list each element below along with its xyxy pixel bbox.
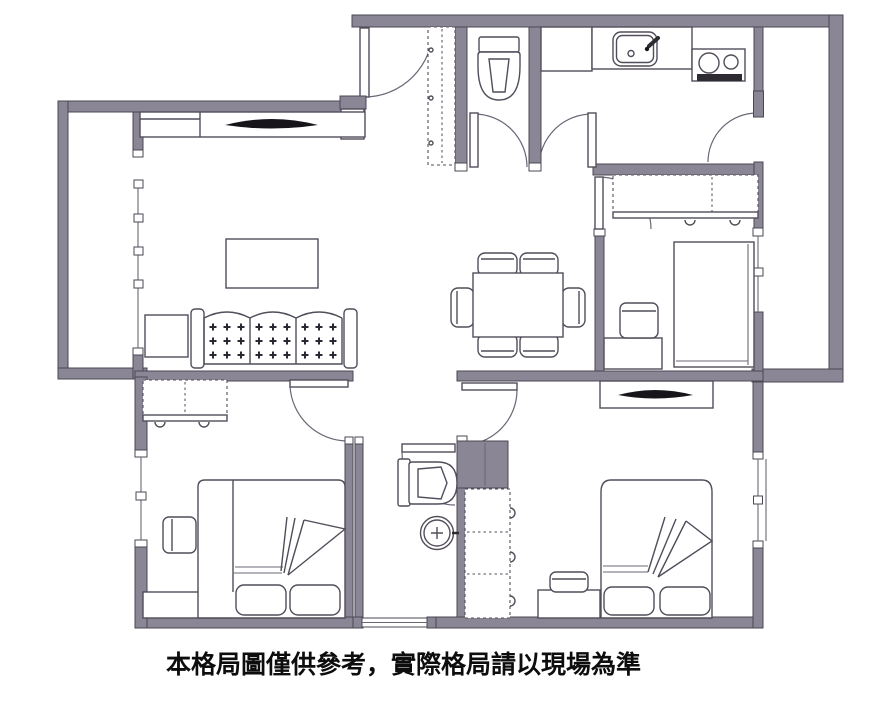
wall-living-top — [58, 101, 365, 112]
wall-bedroom-right-left — [595, 229, 604, 372]
coffee-table — [226, 239, 318, 288]
wall-toilet-left — [455, 27, 467, 170]
window-balcony-left — [134, 180, 143, 348]
toilet — [398, 459, 457, 506]
sofa-tufting-3 — [302, 324, 337, 359]
bedroom-right — [604, 175, 758, 369]
pillow — [604, 587, 654, 615]
kitchen — [541, 27, 745, 81]
sofa-back — [204, 312, 342, 318]
disclaimer-text: 本格局圖僅供參考，實際格局請以現場為準 — [166, 645, 726, 681]
desk — [604, 338, 662, 369]
kitchen-sink — [613, 32, 658, 66]
entrance-door-leaf — [360, 28, 369, 97]
bedroom-bottom-right-door-leaf — [462, 383, 517, 390]
washbasin — [421, 517, 460, 550]
wall-cap-window — [427, 617, 436, 628]
wall-cap-window — [353, 617, 362, 628]
wall-toilet-right — [529, 27, 541, 170]
gas-stove — [692, 49, 745, 81]
wall-cap — [753, 541, 763, 548]
single-bed — [674, 242, 754, 367]
wall-cap — [345, 437, 353, 444]
wall-right-step — [752, 369, 843, 382]
toilet-tank — [479, 37, 519, 52]
wall-dining-bottom — [457, 371, 763, 381]
kitchen-door-arc — [539, 114, 592, 167]
pillow — [660, 587, 710, 615]
dining-area — [451, 253, 585, 357]
dresser — [538, 590, 600, 618]
dining-chair — [451, 288, 474, 327]
pillow — [236, 585, 286, 615]
wall-cap — [529, 163, 541, 171]
window-bedroom-left — [136, 457, 146, 540]
wall-top — [352, 15, 843, 27]
sofa-tufting-2 — [256, 324, 291, 359]
sofa-armrest-right — [344, 309, 357, 368]
dining-chair — [562, 288, 585, 327]
double-bed — [601, 480, 712, 618]
kitchen-door-leaf — [588, 113, 596, 167]
toilet-tank — [398, 459, 410, 506]
bathroom-door-leaf — [402, 444, 455, 452]
toilet-door-leaf — [470, 113, 478, 167]
wall-balcony-right-upper — [754, 27, 763, 92]
tall-cabinet — [465, 489, 515, 618]
dining-table — [473, 273, 563, 337]
floor-plan-page: 本格局圖僅供參考，實際格局請以現場為準 — [0, 0, 889, 707]
wall-cap — [135, 450, 147, 457]
wall-bedroom-bright-outer-lower — [753, 548, 763, 628]
kitchen-counter — [541, 27, 592, 71]
stool — [620, 303, 658, 338]
living-room — [140, 112, 365, 368]
wall-left-outer — [58, 101, 68, 379]
wall-cap — [133, 348, 143, 355]
bedroom-bottom-right-door-arc — [462, 390, 517, 445]
double-bed — [198, 480, 345, 618]
entry-step-upper — [340, 96, 366, 109]
tv-console — [600, 381, 713, 408]
window-bedroom-bottom-right — [754, 459, 767, 541]
toilet-room — [478, 37, 520, 100]
wall-cap — [133, 150, 143, 157]
wall-cap — [135, 540, 147, 547]
wall-cap — [355, 437, 363, 444]
bedroom-bottom-left — [143, 380, 345, 618]
entry — [340, 27, 455, 165]
window-balcony-right-partition — [754, 236, 763, 312]
window-bathroom-bottom — [362, 618, 427, 627]
bedroom-right-door-leaf — [595, 177, 603, 229]
wall-bathroom-left — [355, 437, 363, 628]
chair — [163, 517, 196, 553]
bedroom-left-door-arc — [290, 386, 348, 441]
wall-right-outer — [829, 15, 843, 375]
stool — [550, 572, 588, 592]
wall-cap — [753, 228, 763, 236]
wardrobe — [613, 175, 758, 225]
shower-storage-block — [457, 441, 508, 488]
balcony-door-arc — [708, 113, 757, 162]
bedroom-bottom-right — [457, 381, 713, 618]
sofa — [191, 309, 357, 368]
floor-plan-drawing — [0, 0, 889, 707]
toilet-door-arc — [474, 114, 527, 167]
wall-bedroom-right-top — [593, 164, 763, 175]
sofa-tufting-1 — [210, 324, 245, 359]
wall-bedroom-left-right — [345, 437, 353, 628]
entrance-door-arc — [364, 28, 433, 97]
wall-cap — [594, 229, 605, 236]
sofa-armrest-left — [191, 309, 204, 368]
bedroom-left-door-leaf — [290, 380, 348, 387]
shoe-cabinet — [428, 27, 455, 165]
wardrobe — [143, 380, 227, 427]
wall-cap — [753, 452, 763, 459]
pillow — [290, 585, 340, 615]
balcony-door-leaf — [754, 91, 764, 117]
wall-bedroom-bright-outer-upper — [753, 382, 763, 452]
wall-cap — [455, 163, 467, 171]
side-table — [145, 315, 188, 357]
